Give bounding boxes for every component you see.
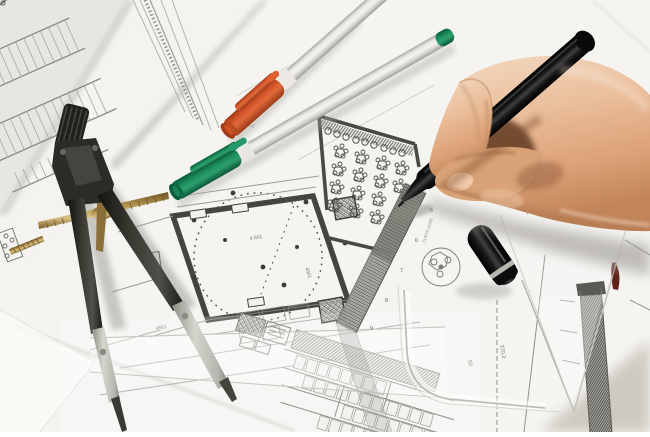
svg-text:9: 9: [370, 326, 373, 332]
svg-text:7: 7: [400, 268, 403, 274]
svg-text:8: 8: [385, 298, 388, 304]
svg-text:6: 6: [415, 238, 418, 244]
